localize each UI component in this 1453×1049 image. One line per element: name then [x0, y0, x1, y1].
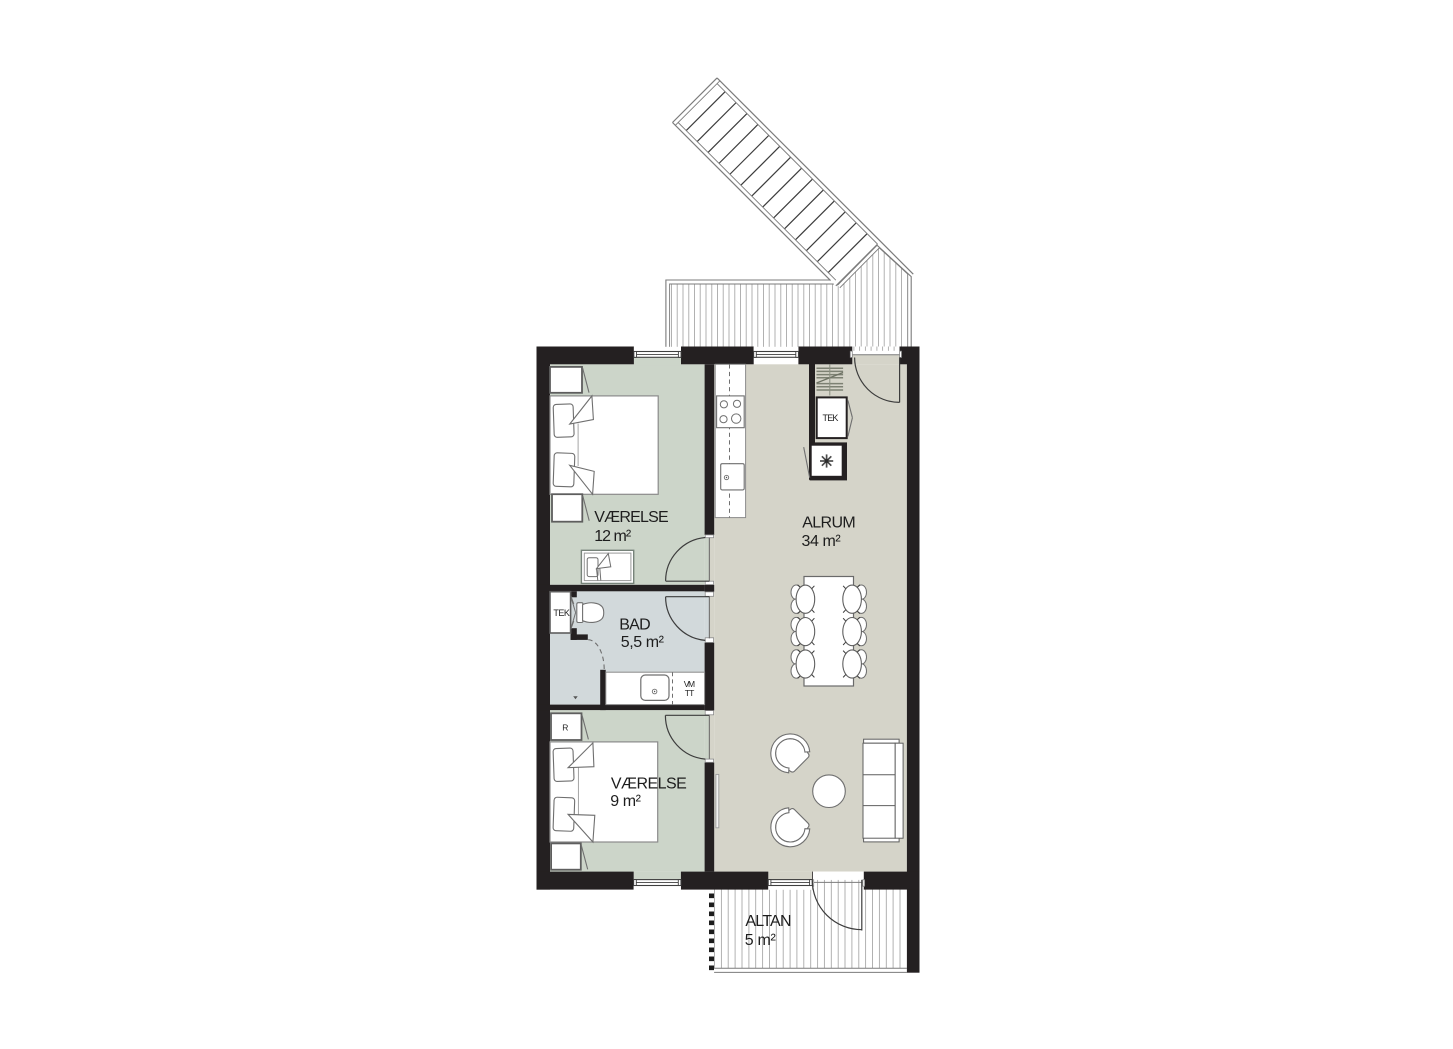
svg-text:BAD: BAD: [619, 616, 651, 633]
svg-text:VÆRELSE: VÆRELSE: [594, 509, 669, 526]
svg-text:TEK: TEK: [553, 608, 570, 618]
svg-text:TEK: TEK: [823, 413, 839, 423]
svg-text:34 m²: 34 m²: [802, 533, 842, 550]
svg-text:9 m²: 9 m²: [610, 793, 641, 810]
svg-text:TT: TT: [685, 688, 695, 698]
svg-text:12 m²: 12 m²: [594, 528, 632, 545]
svg-text:VÆRELSE: VÆRELSE: [611, 776, 687, 793]
svg-text:R: R: [562, 723, 568, 733]
svg-text:ALRUM: ALRUM: [802, 515, 856, 532]
svg-text:ALTAN: ALTAN: [745, 913, 791, 930]
svg-text:5,5 m²: 5,5 m²: [621, 634, 665, 651]
svg-text:5 m²: 5 m²: [745, 932, 777, 949]
